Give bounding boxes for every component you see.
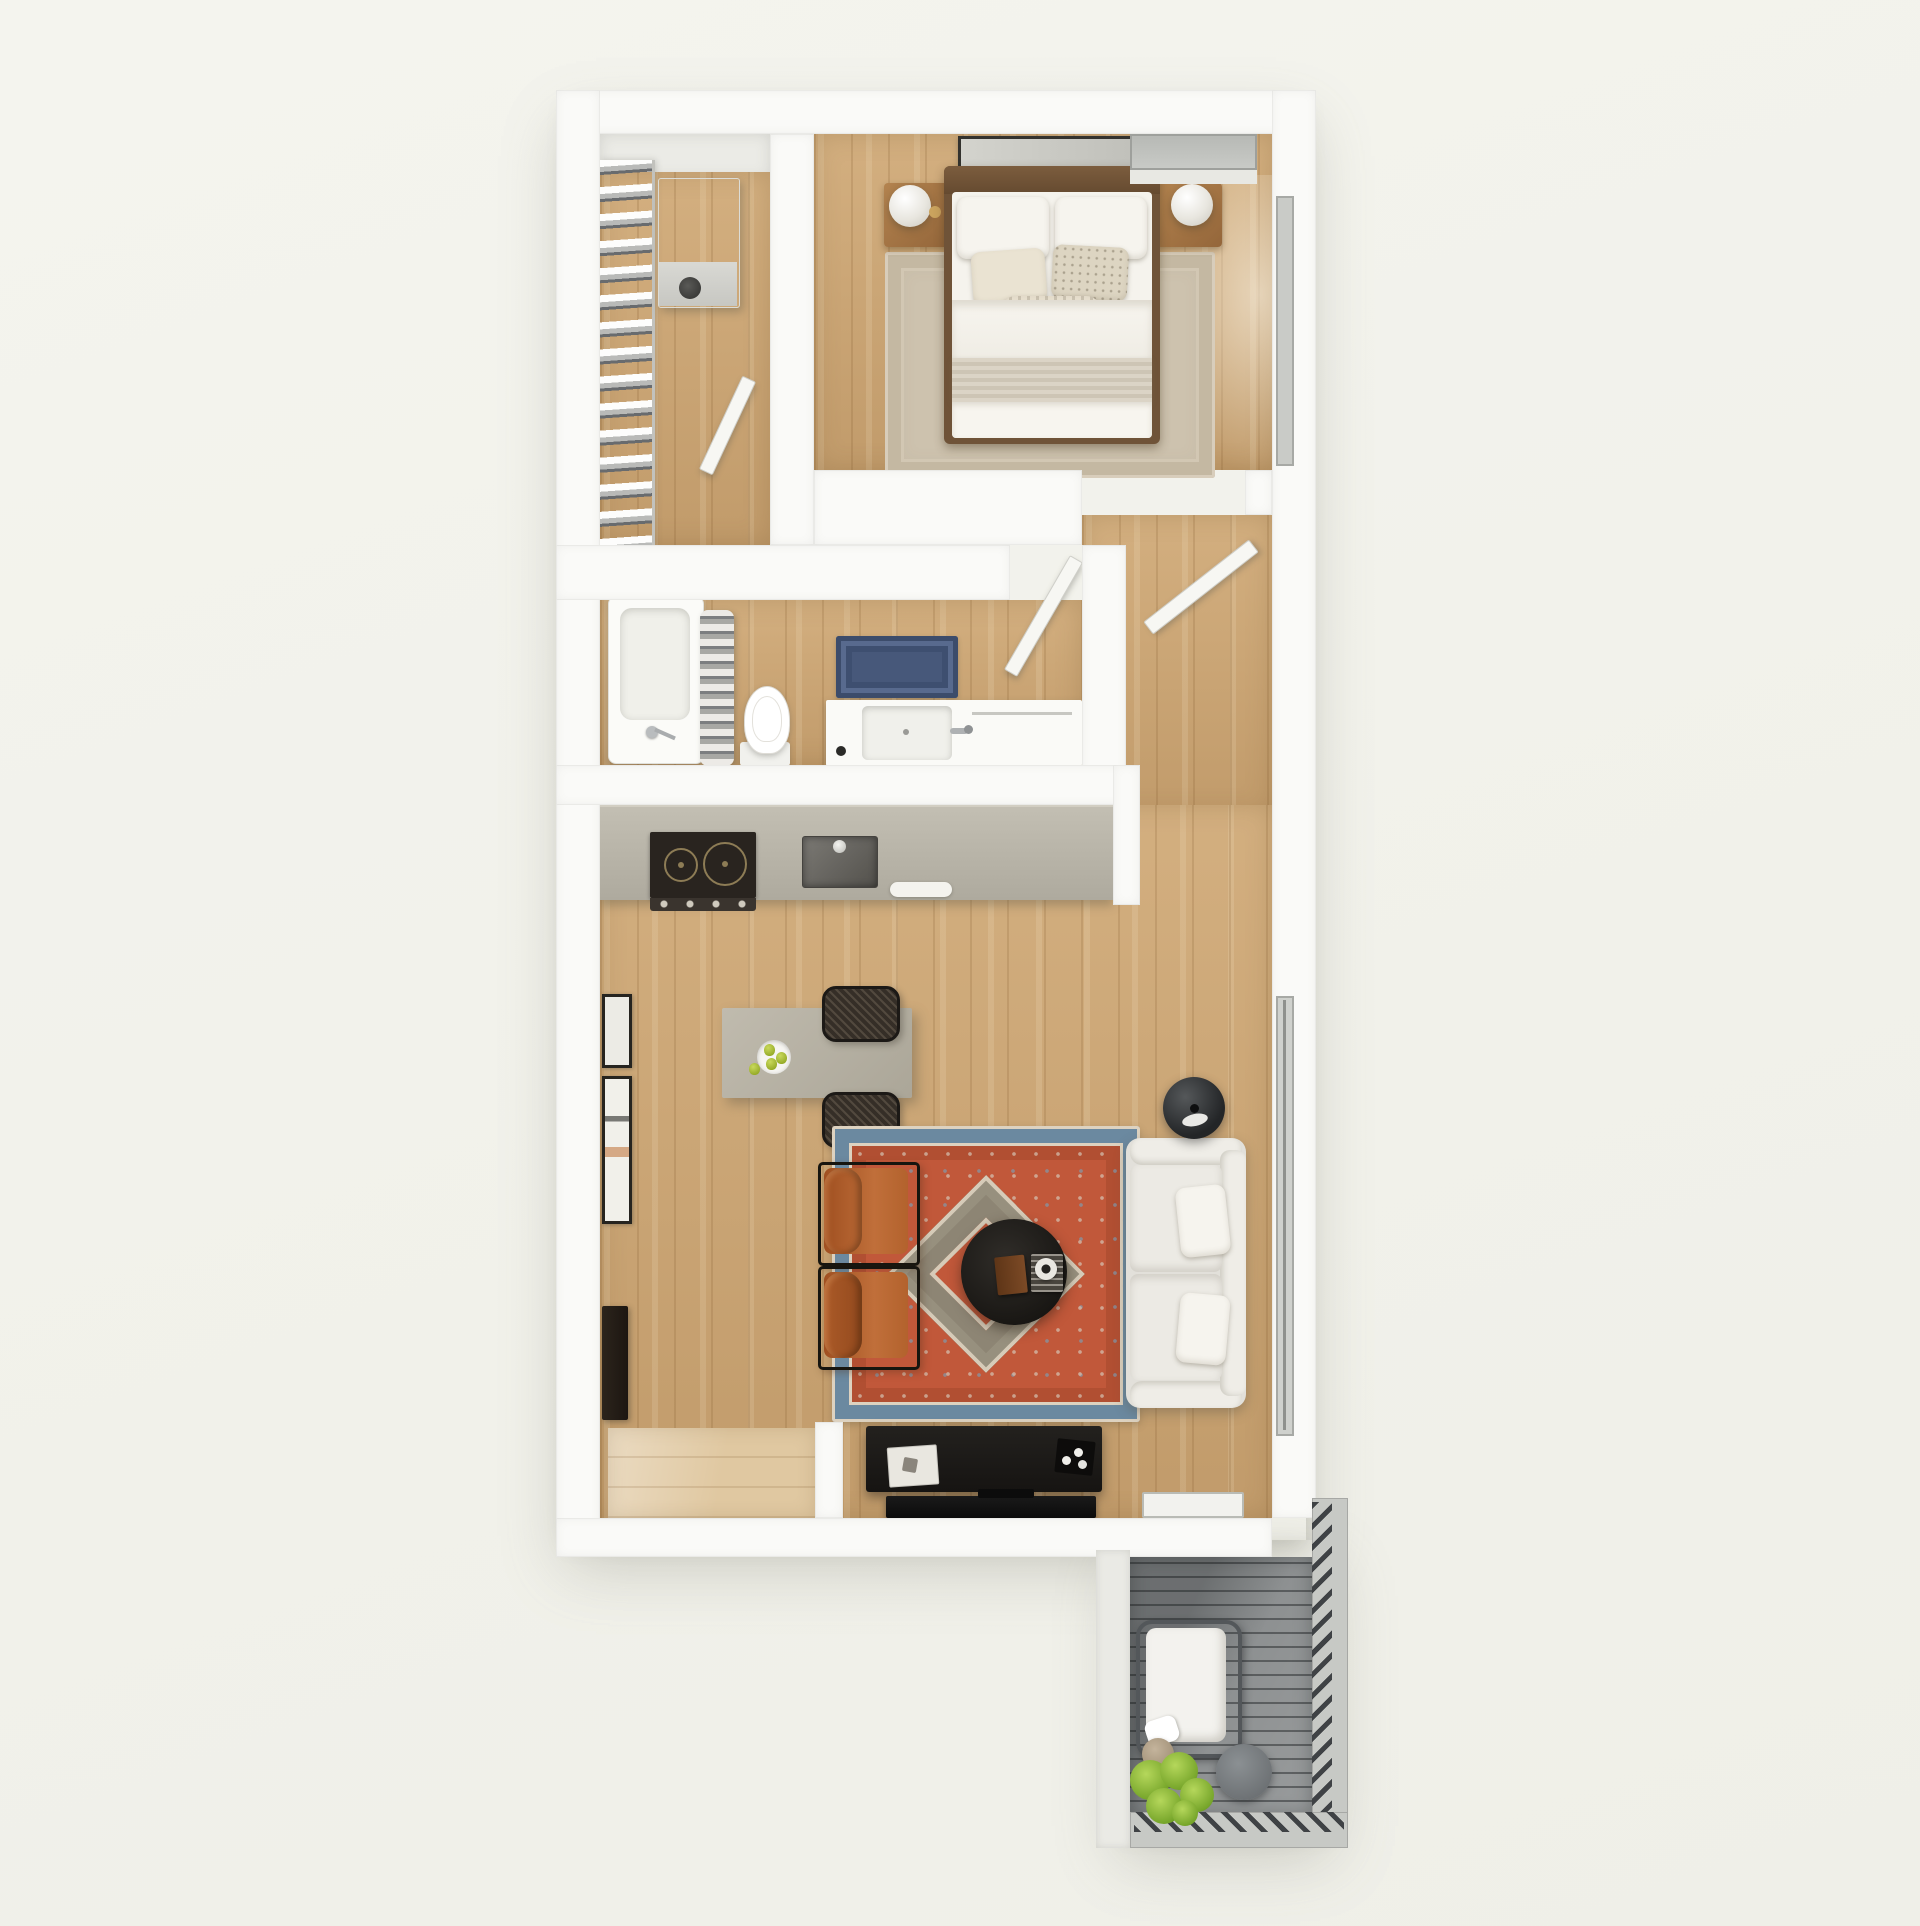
console-tray <box>1054 1438 1095 1476</box>
bedroom-window-right <box>1276 196 1294 466</box>
closet-rod <box>652 160 655 546</box>
sink-drain <box>903 729 909 735</box>
leather-chair-1-back <box>824 1168 862 1254</box>
throw-blanket <box>952 358 1152 402</box>
wall-bathroom-north <box>556 545 1010 600</box>
table-cup <box>1035 1258 1057 1280</box>
tray-cup-3 <box>1078 1460 1087 1469</box>
entry-floor <box>608 1428 815 1518</box>
accent-cushion-woven <box>1051 244 1130 302</box>
pear-3 <box>766 1058 777 1070</box>
duvet <box>952 300 1152 362</box>
wall-bottom <box>556 1518 1272 1557</box>
wall-bedroom-south-left <box>814 470 1082 545</box>
outdoor-side-table <box>1216 1744 1272 1800</box>
burner-large <box>703 842 747 886</box>
wall-bathroom-east <box>1082 545 1126 800</box>
cooktop-knobs <box>650 898 756 911</box>
wall-frame-small <box>602 994 632 1068</box>
sofa-pillow-1 <box>1174 1184 1231 1259</box>
balcony-railing-right-slats <box>1312 1502 1332 1844</box>
table-lamp-left <box>889 185 931 227</box>
tray-cup-2 <box>1074 1448 1083 1457</box>
table-lamp-right <box>1171 184 1213 226</box>
pear-4 <box>749 1063 760 1075</box>
floor-lamp-stem <box>1190 1104 1199 1113</box>
leather-chair-2-back <box>824 1272 862 1358</box>
balcony-slab-edge <box>1096 1550 1130 1848</box>
lamp-gold-base-left <box>929 206 941 218</box>
shower-curtain <box>700 610 734 766</box>
towel-bar <box>972 712 1072 715</box>
living-window-frame <box>1283 1000 1286 1430</box>
wall-left <box>556 90 600 1557</box>
floor-plan-canvas <box>0 0 1920 1926</box>
toilet-seat <box>752 696 782 742</box>
wall-kitchen-north <box>556 765 1140 805</box>
tv-stand <box>978 1489 1034 1498</box>
bedroom-window-top <box>1130 134 1257 170</box>
counter-dish <box>890 882 952 897</box>
pear-1 <box>764 1044 775 1056</box>
sofa-pillow-2 <box>1175 1292 1231 1366</box>
bed-foot <box>952 402 1152 438</box>
soap-dispenser <box>836 746 846 756</box>
wall-entry-stub <box>815 1422 843 1518</box>
tall-dark-cabinet <box>602 1306 628 1420</box>
vanity-faucet-base <box>964 725 973 734</box>
headboard <box>944 166 1160 194</box>
console-book-mark <box>902 1457 918 1473</box>
tv-panel <box>886 1496 1096 1518</box>
wall-bedroom-south-right <box>1245 470 1272 515</box>
wall-kitchen-nook <box>1113 765 1140 905</box>
balcony-threshold <box>1142 1492 1244 1518</box>
table-brown-book <box>994 1255 1028 1296</box>
wall-top <box>556 90 1316 134</box>
wall-frame-tall <box>602 1076 632 1224</box>
kitchen-faucet <box>833 840 846 853</box>
pear-2 <box>776 1052 787 1064</box>
bedroom-window-sill <box>1130 170 1257 184</box>
plant-leaf-5 <box>1172 1800 1198 1826</box>
water-heater-vent <box>679 277 701 299</box>
tray-cup-1 <box>1062 1456 1071 1465</box>
bathtub-basin <box>620 608 690 720</box>
wall-closet-bedroom <box>770 134 814 545</box>
burner-small <box>664 848 698 882</box>
rattan-chair-top <box>822 986 900 1042</box>
hanging-clothes <box>600 160 654 546</box>
bath-rug <box>836 636 958 698</box>
